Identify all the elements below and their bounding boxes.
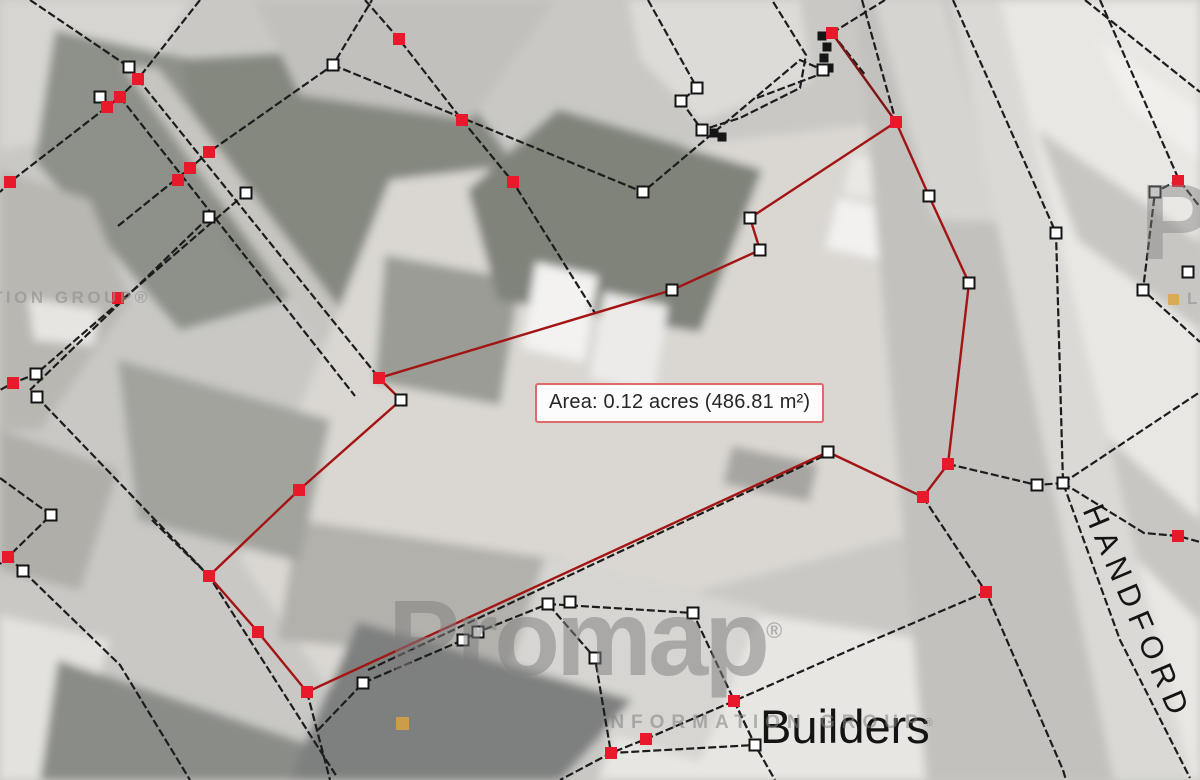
measurement-vertex-handle[interactable] <box>456 114 468 126</box>
boundary-vertex-handle[interactable] <box>18 566 29 577</box>
boundary-vertex-handle[interactable] <box>638 187 649 198</box>
boundary-vertex-handle[interactable] <box>358 678 369 689</box>
measurement-vertex-handle[interactable] <box>184 162 196 174</box>
measurement-vertex-handle[interactable] <box>203 146 215 158</box>
measurement-vertex-handle[interactable] <box>507 176 519 188</box>
measurement-vertex-handle[interactable] <box>640 733 652 745</box>
boundary-mark <box>718 133 727 142</box>
landmark-bullet-icon <box>396 717 409 730</box>
measurement-vertex-handle[interactable] <box>114 91 126 103</box>
measurement-vertex-handle[interactable] <box>203 570 215 582</box>
measurement-vertex-handle[interactable] <box>4 176 16 188</box>
boundary-vertex-handle[interactable] <box>823 447 834 458</box>
measurement-vertex-handle[interactable] <box>826 27 838 39</box>
measurement-vertex-handle[interactable] <box>942 458 954 470</box>
boundary-vertex-handle[interactable] <box>750 740 761 751</box>
boundary-vertex-handle[interactable] <box>31 369 42 380</box>
watermark-fragment-right-brand: Pr <box>1140 168 1200 276</box>
boundary-vertex-handle[interactable] <box>924 191 935 202</box>
measurement-vertex-handle[interactable] <box>917 491 929 503</box>
boundary-mark <box>820 54 829 63</box>
measurement-vertex-handle[interactable] <box>7 377 19 389</box>
measurement-vertex-handle[interactable] <box>301 686 313 698</box>
measurement-vertex-handle[interactable] <box>172 174 184 186</box>
boundary-vertex-handle[interactable] <box>32 392 43 403</box>
boundary-vertex-handle[interactable] <box>241 188 252 199</box>
boundary-vertex-handle[interactable] <box>667 285 678 296</box>
boundary-vertex-handle[interactable] <box>755 245 766 256</box>
boundary-vertex-handle[interactable] <box>46 510 57 521</box>
registered-mark-icon: ® <box>925 717 933 729</box>
measurement-vertex-handle[interactable] <box>373 372 385 384</box>
measurement-vertex-handle[interactable] <box>132 73 144 85</box>
registered-mark-icon: ® <box>766 618 782 643</box>
landmark-watermark-text: LANDMARK INFORMATION GROUP <box>420 712 925 734</box>
measurement-vertex-handle[interactable] <box>1172 530 1184 542</box>
boundary-vertex-handle[interactable] <box>328 60 339 71</box>
boundary-vertex-handle[interactable] <box>1138 285 1149 296</box>
landmark-watermark-fragment-text: LAN <box>1187 289 1200 309</box>
promap-watermark: Promap® <box>388 584 782 692</box>
landmark-bullet-icon <box>1168 294 1179 305</box>
boundary-vertex-handle[interactable] <box>1032 480 1043 491</box>
boundary-vertex-handle[interactable] <box>124 62 135 73</box>
measurement-vertex-handle[interactable] <box>890 116 902 128</box>
boundary-vertex-handle[interactable] <box>396 395 407 406</box>
measurement-vertex-handle[interactable] <box>980 586 992 598</box>
map-canvas[interactable]: Area: 0.12 acres (486.81 m²) HANDFORD Bu… <box>0 0 1200 780</box>
boundary-mark <box>823 43 832 52</box>
boundary-vertex-handle[interactable] <box>95 92 106 103</box>
promap-watermark-text: Promap <box>388 577 766 698</box>
measurement-vertex-handle[interactable] <box>605 747 617 759</box>
watermark-fragment-left: TION GROUP® <box>0 288 151 308</box>
boundary-mark <box>818 32 827 41</box>
measurement-vertex-handle[interactable] <box>101 101 113 113</box>
measurement-vertex-handle[interactable] <box>393 33 405 45</box>
measurement-vertex-handle[interactable] <box>293 484 305 496</box>
boundary-vertex-handle[interactable] <box>818 65 829 76</box>
measurement-vertex-handle[interactable] <box>2 551 14 563</box>
boundary-vertex-handle[interactable] <box>697 125 708 136</box>
aerial-imagery-patch <box>590 292 668 392</box>
boundary-vertex-handle[interactable] <box>745 213 756 224</box>
boundary-vertex-handle[interactable] <box>204 212 215 223</box>
boundary-vertex-handle[interactable] <box>1058 478 1069 489</box>
boundary-mark <box>710 129 719 138</box>
boundary-vertex-handle[interactable] <box>676 96 687 107</box>
measurement-vertex-handle[interactable] <box>252 626 264 638</box>
watermark-fragment-right-tagline: LAN <box>1168 289 1200 309</box>
boundary-vertex-handle[interactable] <box>964 278 975 289</box>
area-measurement-label[interactable]: Area: 0.12 acres (486.81 m²) <box>535 383 824 423</box>
boundary-vertex-handle[interactable] <box>692 83 703 94</box>
landmark-watermark: LANDMARK INFORMATION GROUP ® <box>396 712 933 734</box>
boundary-vertex-handle[interactable] <box>1051 228 1062 239</box>
